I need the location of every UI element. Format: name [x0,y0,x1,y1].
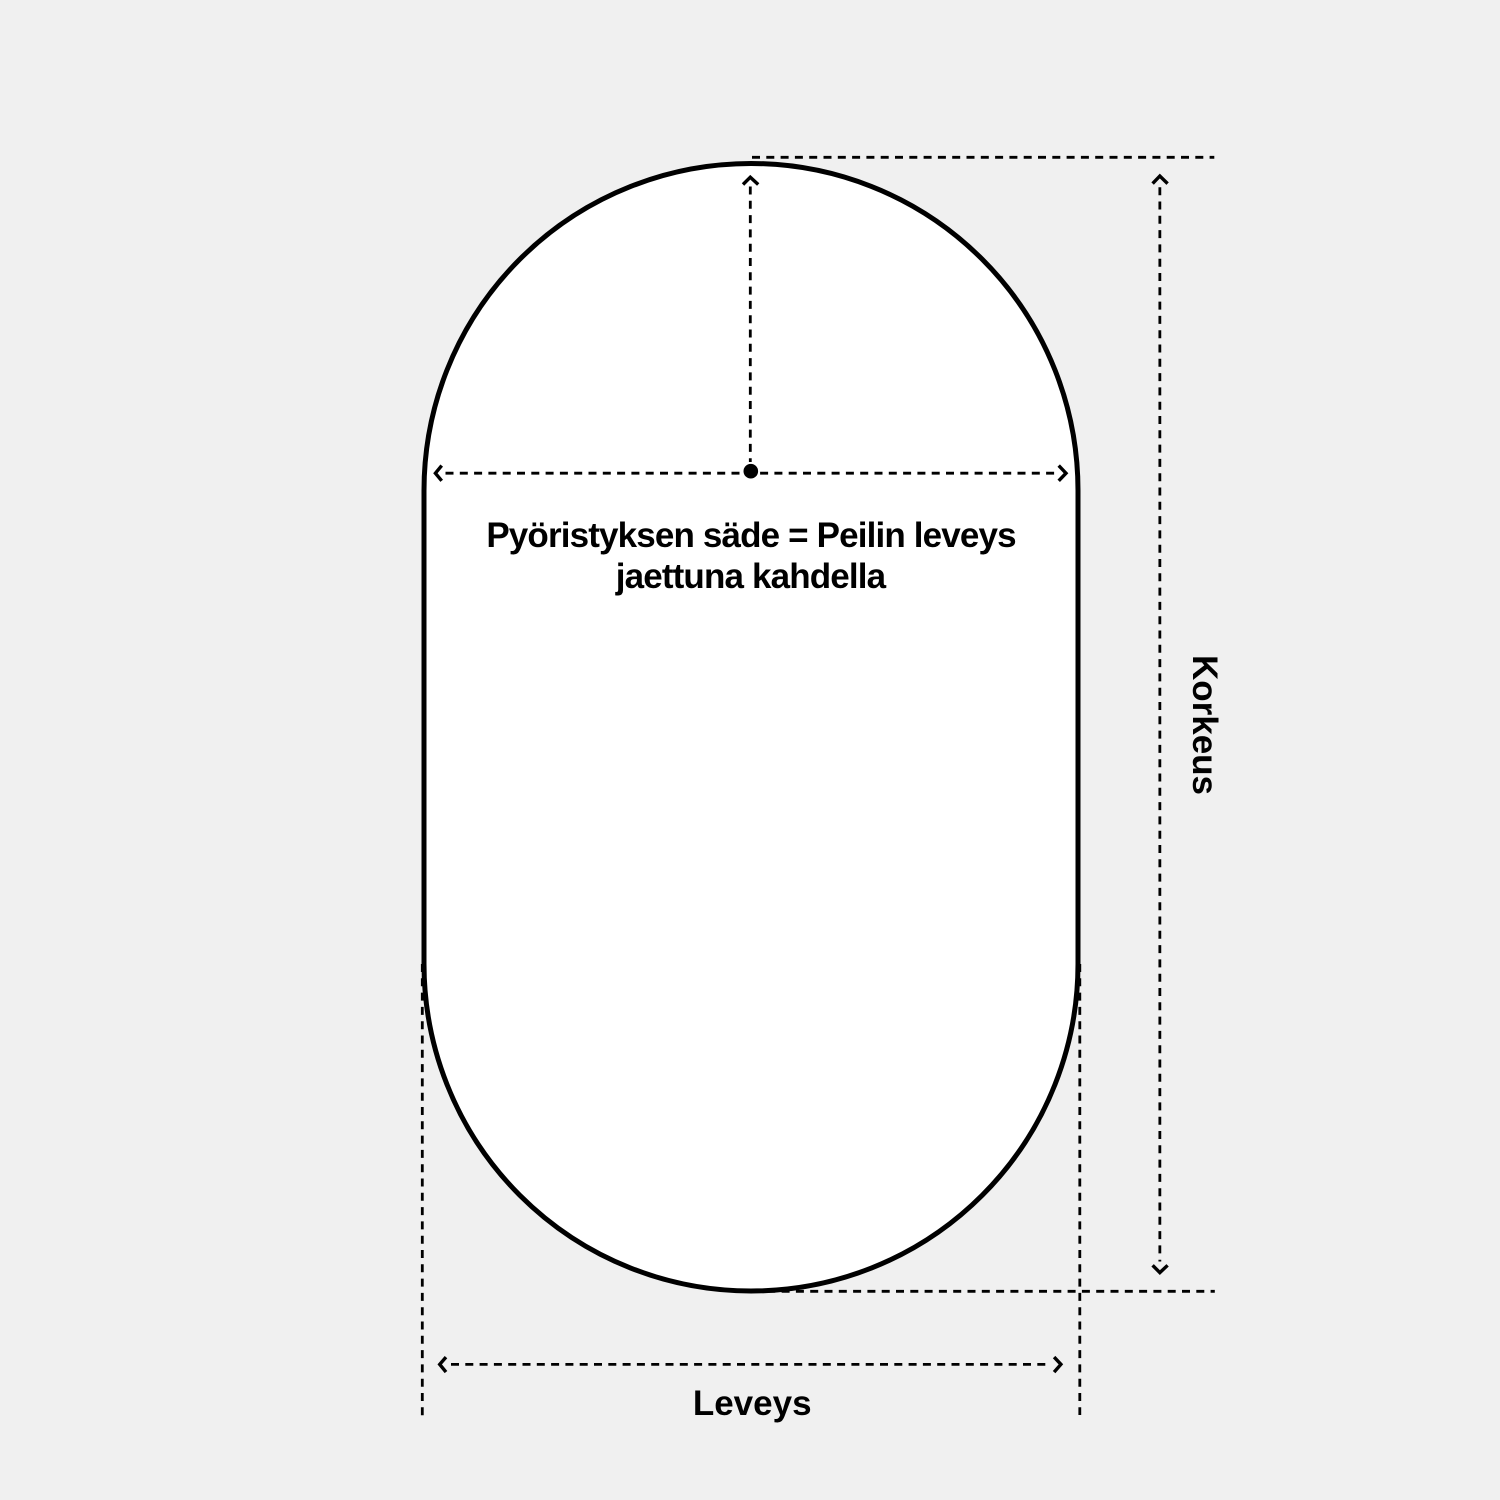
svg-text:Korkeus: Korkeus [1185,655,1224,795]
svg-text:Pyöristyksen säde = Peilin lev: Pyöristyksen säde = Peilin leveys [486,516,1016,555]
svg-text:Leveys: Leveys [693,1384,812,1423]
svg-text:jaettuna kahdella: jaettuna kahdella [615,557,887,596]
